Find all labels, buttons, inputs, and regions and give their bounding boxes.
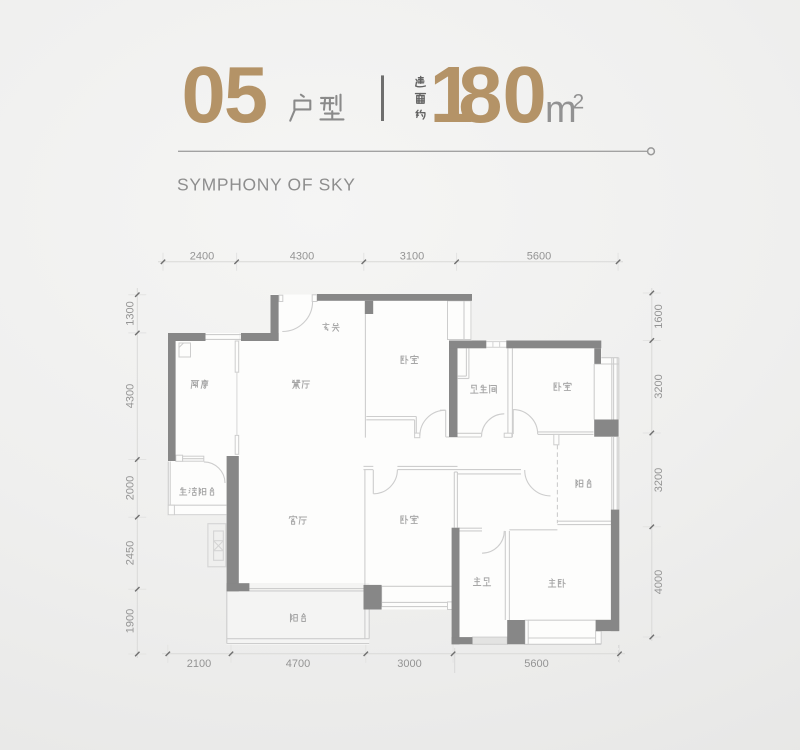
svg-text:4300: 4300 — [290, 250, 314, 262]
svg-text:1600: 1600 — [653, 304, 665, 328]
svg-text:05: 05 — [182, 50, 267, 139]
svg-text:2450: 2450 — [125, 541, 137, 565]
svg-text:180: 180 — [430, 50, 547, 139]
svg-text:2000: 2000 — [125, 476, 137, 500]
svg-text:5600: 5600 — [524, 658, 548, 670]
svg-text:2: 2 — [573, 91, 585, 114]
svg-text:SYMPHONY OF SKY: SYMPHONY OF SKY — [177, 175, 356, 195]
svg-text:4000: 4000 — [653, 570, 665, 594]
svg-text:4300: 4300 — [125, 384, 137, 408]
svg-text:3000: 3000 — [397, 658, 421, 670]
svg-text:3200: 3200 — [653, 374, 665, 398]
svg-text:1900: 1900 — [125, 609, 137, 633]
svg-text:2100: 2100 — [187, 658, 211, 670]
svg-text:2400: 2400 — [190, 250, 214, 262]
svg-text:3200: 3200 — [653, 468, 665, 492]
svg-text:4700: 4700 — [286, 658, 310, 670]
svg-text:3100: 3100 — [400, 250, 424, 262]
svg-text:1300: 1300 — [125, 301, 137, 325]
svg-text:5600: 5600 — [527, 250, 551, 262]
